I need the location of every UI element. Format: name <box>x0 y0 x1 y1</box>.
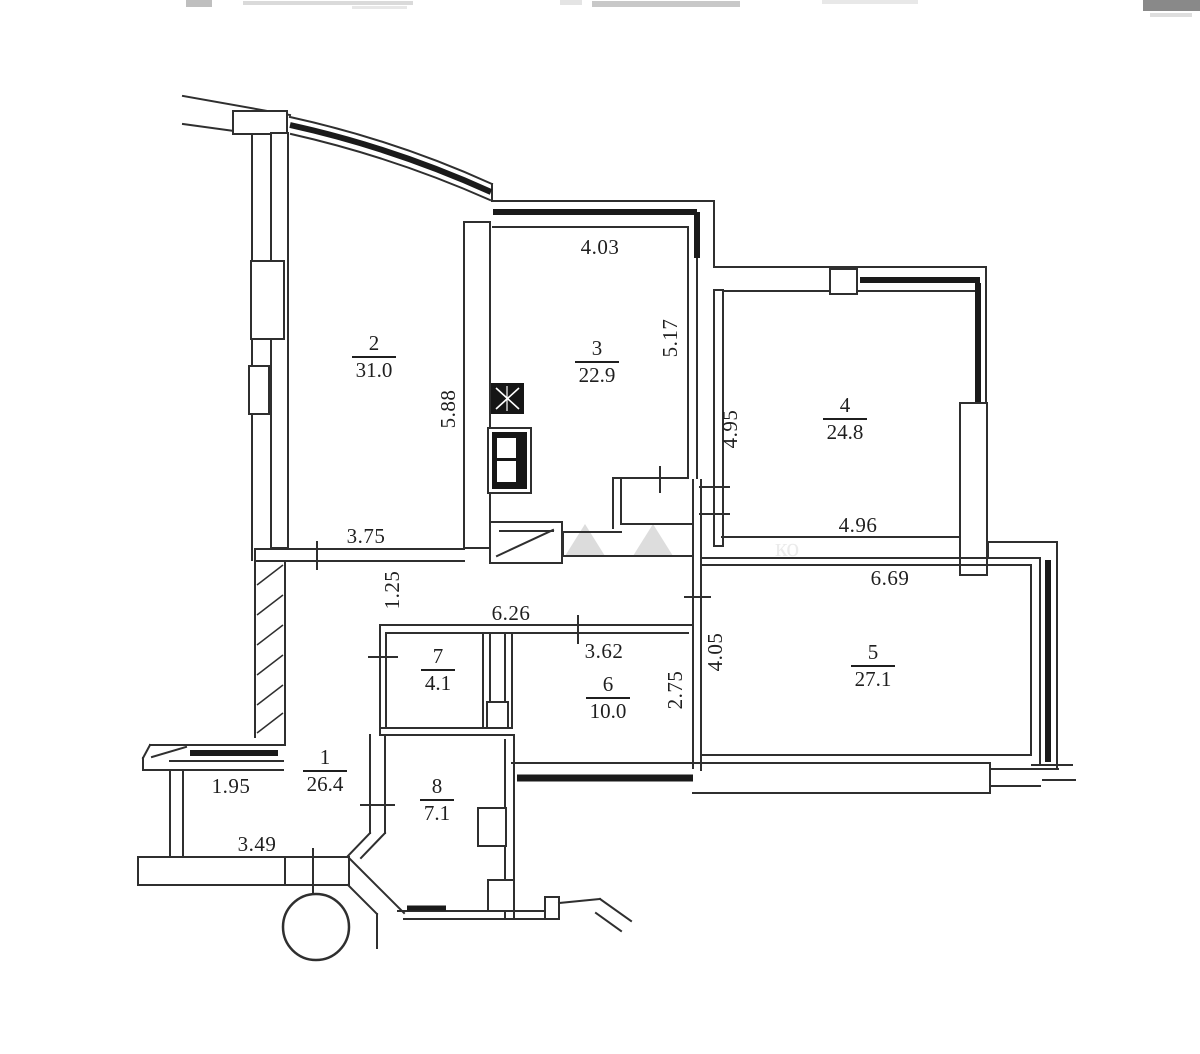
dimension-1.95: 1.95 <box>212 774 251 798</box>
room-label-4: 4 24.8 <box>823 393 867 444</box>
room-7-number: 7 <box>433 644 444 668</box>
room-label-5: 5 27.1 <box>851 640 895 691</box>
room-6-area: 10.0 <box>590 699 627 723</box>
room-label-8: 8 7.1 <box>420 774 454 825</box>
room-2-number: 2 <box>369 331 380 355</box>
room-4-area: 24.8 <box>827 420 864 444</box>
dimension-3.75: 3.75 <box>347 524 386 548</box>
vent-shafts <box>488 384 531 493</box>
room-7-area: 4.1 <box>425 671 451 695</box>
dimension-3.49: 3.49 <box>238 832 277 856</box>
room-label-3: 3 22.9 <box>575 336 619 387</box>
dimension-5.88: 5.88 <box>436 390 460 429</box>
room-3-area: 22.9 <box>579 363 616 387</box>
room-4-number: 4 <box>840 393 851 417</box>
room-label-2: 2 31.0 <box>352 331 396 382</box>
room-1-number: 1 <box>320 745 331 769</box>
vent-shaft-hatched <box>492 384 523 413</box>
dimension-5.17: 5.17 <box>658 319 682 358</box>
scan-edge-artifacts <box>186 0 1200 17</box>
dimension-6.69: 6.69 <box>871 566 910 590</box>
dimension-4.96: 4.96 <box>839 513 878 537</box>
room-label-6: 6 10.0 <box>586 672 630 723</box>
dimension-4.05: 4.05 <box>703 633 727 672</box>
room-label-1: 1 26.4 <box>303 745 347 796</box>
walls <box>138 96 1075 948</box>
wall-hatching <box>257 565 283 733</box>
room-6-number: 6 <box>603 672 614 696</box>
dimension-4.95: 4.95 <box>718 410 742 449</box>
room-8-number: 8 <box>432 774 443 798</box>
dimension-1.25: 1.25 <box>380 571 404 610</box>
floor-plan-svg: ко <box>0 0 1200 1054</box>
dimension-3.62: 3.62 <box>585 639 624 663</box>
room-1-area: 26.4 <box>307 772 344 796</box>
room-5-area: 27.1 <box>855 667 892 691</box>
column-circle <box>283 894 349 960</box>
room-label-7: 7 4.1 <box>421 644 455 695</box>
room-8-area: 7.1 <box>424 801 450 825</box>
dimension-6.26: 6.26 <box>492 601 531 625</box>
vent-shaft-double <box>488 428 531 493</box>
room-5-number: 5 <box>868 640 879 664</box>
room-2-area: 31.0 <box>356 358 393 382</box>
room-3-number: 3 <box>592 336 603 360</box>
dimension-4.03: 4.03 <box>581 235 620 259</box>
dimension-2.75: 2.75 <box>663 671 687 710</box>
floor-plan-page: ко <box>0 0 1200 1054</box>
